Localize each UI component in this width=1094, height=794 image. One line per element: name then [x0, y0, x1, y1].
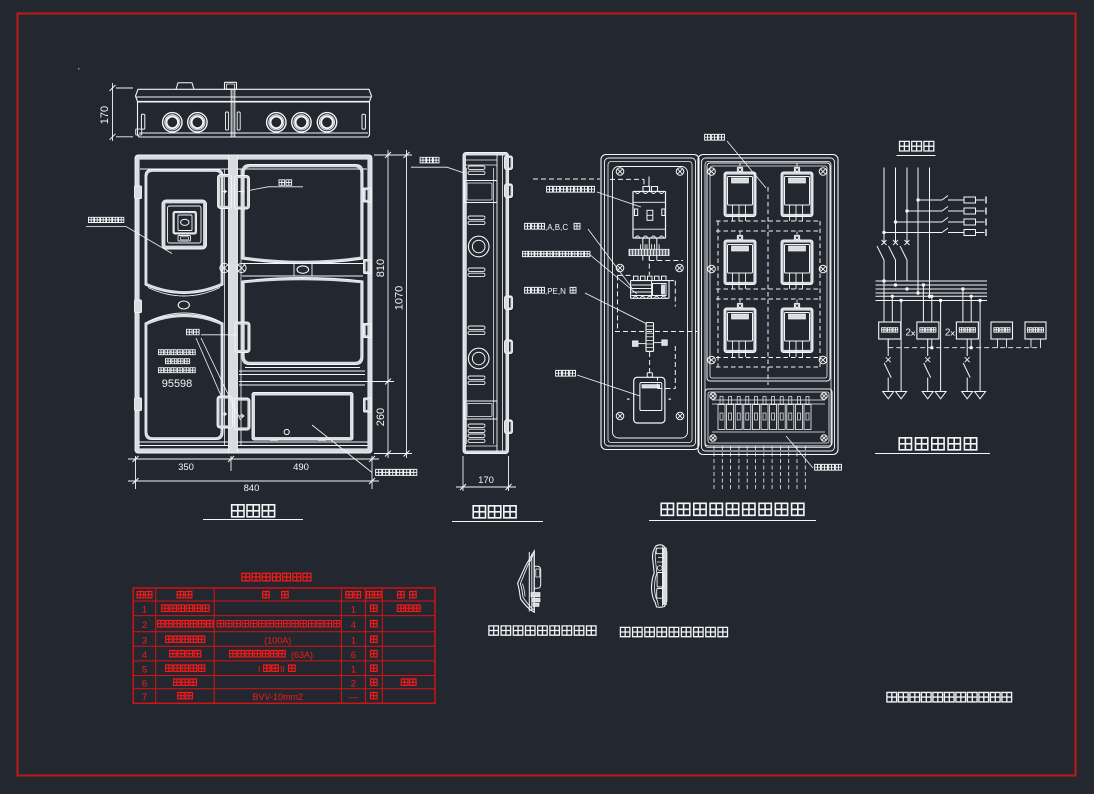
svg-text:840: 840 [244, 483, 260, 494]
svg-text:—: — [349, 692, 359, 703]
svg-text:1: 1 [351, 664, 356, 675]
svg-text:2: 2 [905, 328, 911, 339]
svg-text:810: 810 [375, 259, 387, 277]
svg-text:4: 4 [351, 620, 356, 631]
svg-text:1: 1 [142, 604, 147, 615]
svg-text:6: 6 [142, 678, 147, 689]
svg-text:BVV-10mm2: BVV-10mm2 [253, 692, 304, 702]
svg-text:3: 3 [142, 635, 147, 646]
svg-text:7: 7 [142, 692, 147, 703]
svg-text:2: 2 [351, 678, 356, 689]
svg-text:,PE,N: ,PE,N [545, 287, 566, 296]
svg-text:95598: 95598 [162, 378, 193, 390]
svg-text:490: 490 [293, 462, 309, 473]
svg-text:5: 5 [142, 664, 147, 675]
svg-text:260: 260 [375, 408, 387, 426]
svg-text:1: 1 [351, 604, 356, 615]
svg-text:170: 170 [478, 475, 494, 486]
svg-text:4: 4 [142, 650, 147, 661]
svg-text:2: 2 [945, 328, 951, 339]
svg-text:II: II [280, 664, 285, 674]
svg-text:1: 1 [351, 635, 356, 646]
svg-text:350: 350 [178, 462, 194, 473]
svg-text:2: 2 [142, 620, 147, 631]
svg-text:1070: 1070 [394, 286, 406, 310]
svg-text:(63A): (63A) [291, 650, 313, 660]
svg-text:6: 6 [351, 650, 356, 661]
svg-text:,A,B,C: ,A,B,C [545, 223, 568, 232]
svg-text:I: I [258, 664, 260, 674]
svg-text:170: 170 [99, 106, 111, 124]
svg-text:(100A): (100A) [264, 635, 291, 645]
